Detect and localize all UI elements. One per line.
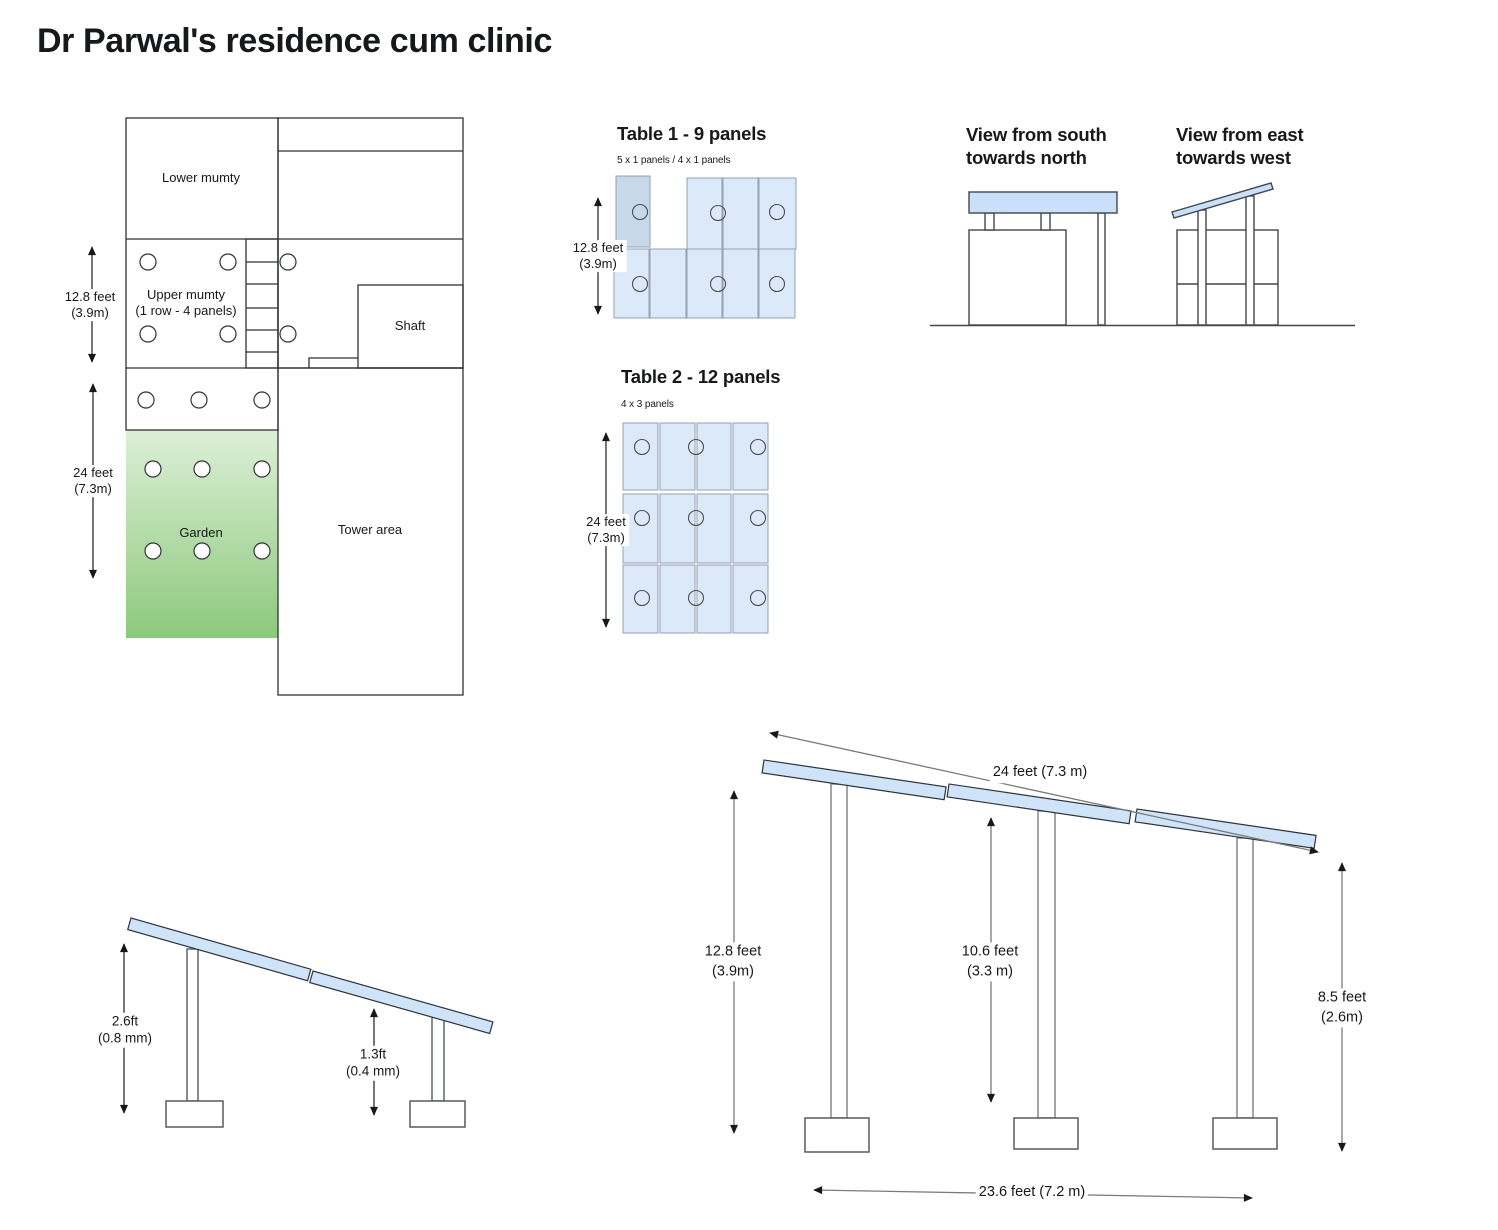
tower-area-label: Tower area bbox=[338, 522, 402, 538]
detail-rear-leg-label: 1.3ft (0.4 mm) bbox=[343, 1046, 403, 1081]
plan-garden-height-label: 24 feet (7.3m) bbox=[70, 465, 116, 497]
table1-subtitle: 5 x 1 panels / 4 x 1 panels bbox=[617, 155, 731, 166]
table1-height-label: 12.8 feet (3.9m) bbox=[570, 240, 627, 272]
elevation-left-height-label: 12.8 feet (3.9m) bbox=[702, 942, 764, 981]
elevation-panel-1 bbox=[762, 760, 946, 800]
east-solar-panel bbox=[1172, 183, 1273, 218]
table2-title: Table 2 - 12 panels bbox=[621, 366, 780, 389]
detail-front-leg-label: 2.6ft (0.8 mm) bbox=[95, 1013, 155, 1048]
plan-right-wing bbox=[278, 118, 463, 368]
floor-plan bbox=[92, 118, 463, 695]
view-south-title: View from south towards north bbox=[966, 124, 1107, 169]
table2-panels bbox=[606, 423, 768, 633]
south-solar-panel bbox=[969, 192, 1117, 213]
east-building bbox=[1177, 230, 1278, 325]
south-tall-post bbox=[1098, 213, 1105, 325]
detail-panel-1 bbox=[128, 918, 311, 981]
drawing-canvas: Dr Parwal's residence cum clinic Lower m… bbox=[0, 0, 1498, 1230]
shaft-step bbox=[309, 358, 358, 368]
table2-height-label: 24 feet (7.3m) bbox=[583, 514, 629, 546]
table2-subtitle: 4 x 3 panels bbox=[621, 399, 674, 410]
upper-mumty-label: Upper mumty (1 row - 4 panels) bbox=[135, 287, 236, 319]
garden-label: Garden bbox=[179, 525, 222, 541]
lower-mumty-label: Lower mumty bbox=[162, 170, 240, 186]
south-building bbox=[969, 230, 1066, 325]
table1-title: Table 1 - 9 panels bbox=[617, 123, 766, 146]
view-east-title: View from east towards west bbox=[1176, 124, 1303, 169]
page-title: Dr Parwal's residence cum clinic bbox=[37, 22, 552, 61]
elevation bbox=[734, 733, 1342, 1198]
stair-ladder bbox=[246, 239, 278, 368]
plan-left-wing bbox=[126, 118, 278, 430]
elevation-right-height-label: 8.5 feet (2.6m) bbox=[1315, 988, 1369, 1027]
plan-mumty-height-label: 12.8 feet (3.9m) bbox=[62, 289, 119, 321]
elevation-base-span-label: 23.6 feet (7.2 m) bbox=[976, 1183, 1088, 1203]
table1-panels bbox=[598, 176, 796, 318]
elevation-middle-height-label: 10.6 feet (3.3 m) bbox=[959, 942, 1021, 981]
elevation-span-label: 24 feet (7.3 m) bbox=[990, 763, 1090, 783]
view-from-south bbox=[969, 192, 1117, 325]
mount-detail bbox=[124, 918, 493, 1127]
view-from-east bbox=[1172, 183, 1278, 325]
shaft-label: Shaft bbox=[395, 318, 425, 334]
elevation-panel-3 bbox=[1135, 809, 1316, 848]
detail-panel-2 bbox=[310, 971, 493, 1033]
